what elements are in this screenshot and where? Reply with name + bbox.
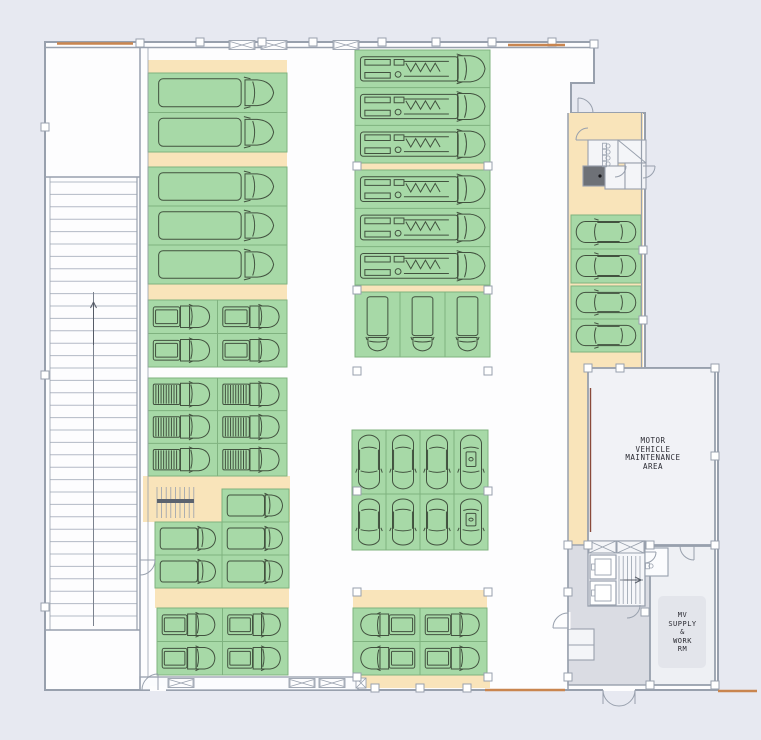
- column-marker: [646, 541, 654, 549]
- stall-block: [355, 292, 490, 357]
- column-marker: [353, 487, 361, 495]
- column-marker: [646, 681, 654, 689]
- column-marker: [711, 541, 719, 549]
- louver-vent: [319, 679, 345, 688]
- stall-block: [352, 494, 488, 550]
- column-marker: [378, 38, 386, 46]
- column-marker: [484, 588, 492, 596]
- elevator: [590, 581, 616, 605]
- stall-block: [148, 167, 287, 284]
- column-marker: [584, 541, 592, 549]
- stall-block: [571, 286, 641, 352]
- door-arc: [578, 98, 593, 113]
- column-marker: [258, 38, 266, 46]
- column-marker: [309, 38, 317, 46]
- stall-block: [222, 489, 289, 522]
- stall-area: [148, 167, 287, 284]
- column-marker: [484, 286, 492, 294]
- floor-plan-svg: [0, 0, 761, 740]
- utility-unit: [583, 166, 606, 186]
- column-marker: [711, 364, 719, 372]
- louver-vent: [229, 41, 255, 50]
- column-marker: [584, 364, 592, 372]
- stall-area: [222, 489, 289, 522]
- column-marker: [353, 286, 361, 294]
- column-marker: [196, 38, 204, 46]
- column-marker: [41, 603, 49, 611]
- column-marker: [639, 246, 647, 254]
- stall-block: [148, 378, 287, 476]
- column-marker: [353, 588, 361, 596]
- tan-zone: [353, 590, 487, 608]
- stall-block: [355, 50, 490, 163]
- tan-zone: [355, 163, 490, 170]
- column-marker: [353, 367, 361, 375]
- column-marker: [564, 673, 572, 681]
- column-marker: [432, 38, 440, 46]
- louver-vent: [289, 679, 315, 688]
- restroom-stalls-room: [588, 140, 618, 166]
- column-marker: [371, 684, 379, 692]
- column-marker: [353, 162, 361, 170]
- door-gap: [603, 686, 635, 691]
- column-marker: [639, 316, 647, 324]
- column-marker: [41, 123, 49, 131]
- tan-zone: [148, 152, 287, 167]
- column-marker: [711, 681, 719, 689]
- equipment-dot: [598, 174, 601, 177]
- maintenance-area-label: MOTOR VEHICLE MAINTENANCE AREA: [593, 437, 713, 471]
- stall-block: [155, 522, 289, 588]
- door-arc: [603, 690, 619, 706]
- tan-zone: [355, 285, 490, 292]
- column-marker: [353, 673, 361, 681]
- stall-block: [353, 608, 487, 675]
- stall-block: [157, 608, 288, 675]
- stall-block: [355, 170, 490, 285]
- vent-shaft: [617, 541, 644, 553]
- tan-zone: [148, 60, 287, 73]
- louver-vent: [333, 41, 359, 50]
- supply-room-label: MV SUPPLY & WORK RM: [652, 611, 713, 654]
- stall-block: [148, 300, 287, 367]
- column-marker: [590, 40, 598, 48]
- tan-zone: [155, 588, 289, 608]
- column-marker: [484, 487, 492, 495]
- column-marker: [484, 367, 492, 375]
- stall-block: [571, 215, 641, 283]
- garage-floor-plan: MOTOR VEHICLE MAINTENANCE AREA MV SUPPLY…: [0, 0, 761, 740]
- louver-vent: [168, 679, 194, 688]
- column-marker: [616, 364, 624, 372]
- column-marker: [641, 608, 649, 616]
- stall-block: [352, 430, 488, 494]
- tan-zone: [568, 375, 588, 545]
- column-marker: [136, 39, 144, 47]
- column-marker: [484, 162, 492, 170]
- column-marker: [41, 371, 49, 379]
- vent-shaft: [589, 541, 616, 553]
- elevator: [590, 555, 616, 579]
- column-marker: [488, 38, 496, 46]
- column-marker: [484, 673, 492, 681]
- column-marker: [564, 588, 572, 596]
- small-room: [625, 163, 646, 189]
- stall-block: [148, 73, 287, 152]
- column-marker: [463, 684, 471, 692]
- stall-area: [355, 292, 490, 357]
- door-arc: [619, 690, 635, 706]
- column-marker: [416, 684, 424, 692]
- tan-zone: [148, 284, 287, 300]
- column-marker: [564, 541, 572, 549]
